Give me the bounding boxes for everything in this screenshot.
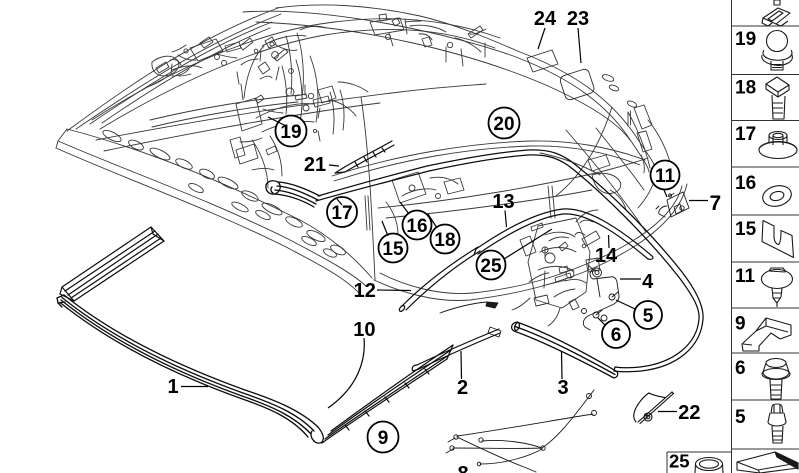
svg-text:25: 25 xyxy=(480,256,502,277)
svg-text:11: 11 xyxy=(655,166,676,187)
svg-text:15: 15 xyxy=(735,219,757,240)
svg-text:18: 18 xyxy=(434,230,455,251)
svg-text:14: 14 xyxy=(595,245,618,267)
svg-text:3: 3 xyxy=(557,377,568,399)
svg-text:7: 7 xyxy=(710,192,722,215)
svg-text:8: 8 xyxy=(457,463,468,473)
svg-text:24: 24 xyxy=(534,8,557,30)
svg-text:9: 9 xyxy=(378,428,389,449)
svg-text:10: 10 xyxy=(353,319,375,341)
svg-text:2: 2 xyxy=(457,377,468,399)
svg-text:16: 16 xyxy=(735,173,756,194)
svg-text:11: 11 xyxy=(735,266,756,287)
svg-text:6: 6 xyxy=(611,325,622,346)
svg-text:6: 6 xyxy=(735,358,746,379)
svg-text:5: 5 xyxy=(643,306,654,327)
svg-text:1: 1 xyxy=(167,376,178,398)
svg-text:22: 22 xyxy=(678,402,700,424)
svg-text:18: 18 xyxy=(735,78,756,99)
svg-text:5: 5 xyxy=(735,407,746,428)
svg-text:12: 12 xyxy=(354,280,376,302)
svg-text:25: 25 xyxy=(669,451,690,472)
svg-text:9: 9 xyxy=(735,314,746,335)
svg-text:16: 16 xyxy=(406,216,427,237)
svg-text:20: 20 xyxy=(493,114,514,135)
svg-text:17: 17 xyxy=(735,124,756,145)
svg-text:15: 15 xyxy=(382,239,404,260)
svg-text:17: 17 xyxy=(331,203,352,224)
svg-text:4: 4 xyxy=(642,271,654,293)
svg-text:19: 19 xyxy=(735,29,756,50)
svg-text:13: 13 xyxy=(492,191,514,213)
svg-text:21: 21 xyxy=(304,154,326,176)
svg-text:23: 23 xyxy=(567,8,589,30)
